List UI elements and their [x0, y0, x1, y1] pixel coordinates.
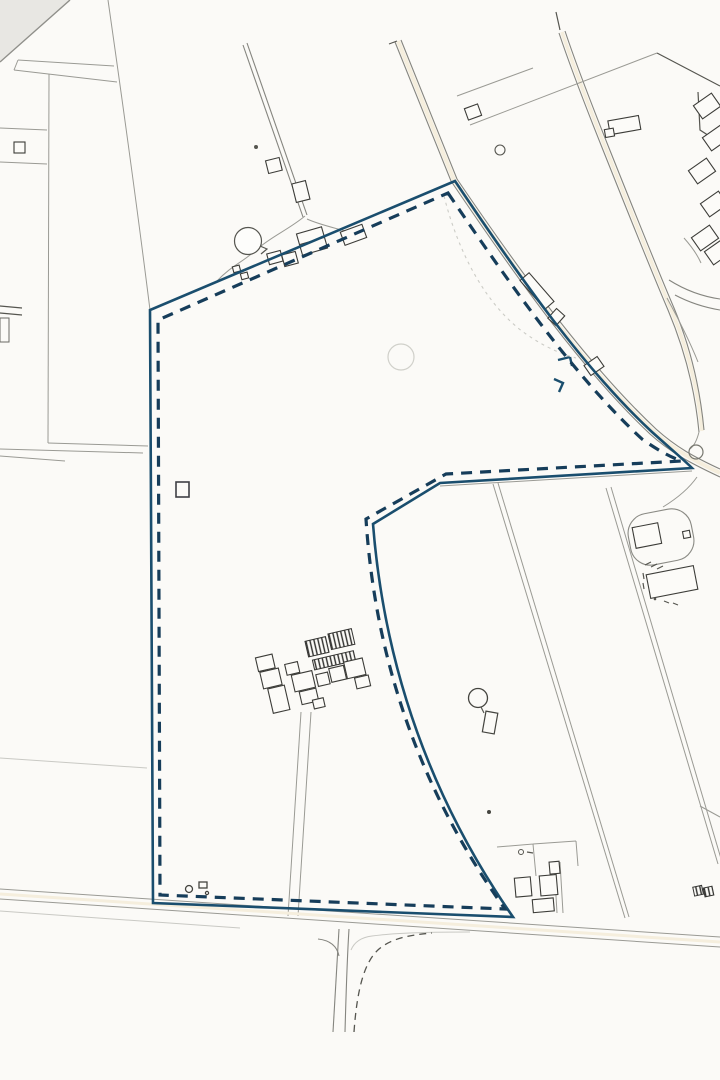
hatched-building [703, 886, 714, 897]
pond [235, 228, 262, 255]
building [632, 523, 662, 549]
marker-dot [487, 810, 491, 814]
site-plan-map [0, 0, 720, 1080]
marker-dot [254, 145, 258, 149]
hatched-building [693, 885, 704, 896]
small-building [14, 142, 25, 153]
small-building [266, 158, 283, 174]
shed [240, 272, 248, 280]
map-canvas [0, 0, 720, 1080]
